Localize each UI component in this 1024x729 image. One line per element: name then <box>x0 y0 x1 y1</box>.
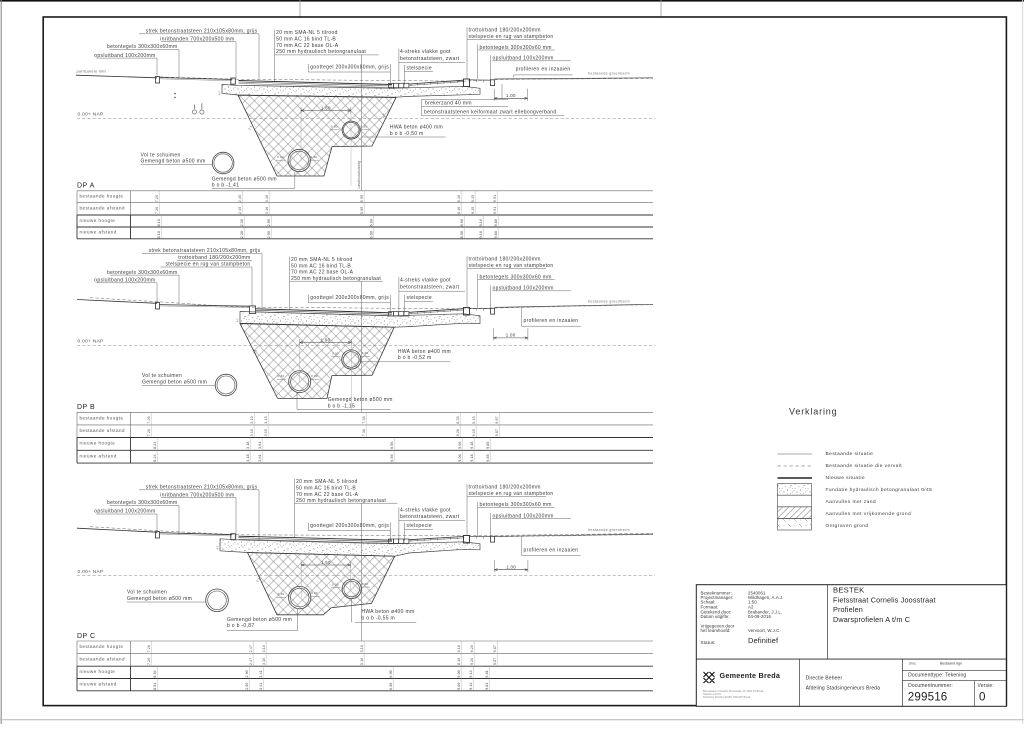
svg-text:Fundatie hydraulisch betongran: Fundatie hydraulisch betongranulaat 0/45 <box>826 487 933 493</box>
svg-text:b o b -0,55 m: b o b -0,55 m <box>361 615 395 621</box>
svg-text:50 mm AC 16 bind TL-B: 50 mm AC 16 bind TL-B <box>291 263 351 269</box>
svg-text:b o b -1,15: b o b -1,15 <box>328 403 355 409</box>
svg-text:Documenttype: Tekening: Documenttype: Tekening <box>908 673 966 679</box>
svg-text:3.10: 3.10 <box>250 429 254 436</box>
svg-text:Verklaring: Verklaring <box>789 407 838 417</box>
svg-text:50 mm AC 16 bind TL-B: 50 mm AC 16 bind TL-B <box>276 37 336 43</box>
svg-text:3.15: 3.15 <box>264 429 268 436</box>
svg-text:3.16: 3.16 <box>265 207 269 214</box>
svg-text:profileren en inzaaien: profileren en inzaaien <box>524 548 579 554</box>
svg-text:1.00: 1.00 <box>506 333 516 338</box>
svg-text:Postadres Postbus 90156,: Postadres Postbus 90156, 4800 RH Breda <box>703 696 751 699</box>
svg-text:bestaande afstand: bestaande afstand <box>80 657 126 662</box>
svg-text:7.36: 7.36 <box>362 429 366 436</box>
svg-text:0 30: 0 30 <box>278 374 285 378</box>
svg-text:stelspecie en rug van stampbet: stelspecie en rug van stampbeton <box>469 491 554 497</box>
svg-text:9.06: 9.06 <box>458 454 462 461</box>
svg-text:7.26: 7.26 <box>147 429 151 436</box>
svg-text:Nieuwe situatie: Nieuwe situatie <box>826 475 865 481</box>
svg-text:8.10: 8.10 <box>157 219 161 226</box>
svg-text:trottoirband 180/200x200mm: trottoirband 180/200x200mm <box>469 257 541 263</box>
svg-text:3.18: 3.18 <box>246 454 250 461</box>
svg-text:nieuwe hoogte: nieuwe hoogte <box>80 441 116 446</box>
svg-text:9.87: 9.87 <box>495 429 499 436</box>
svg-text:4 7: 4 7 <box>218 91 222 95</box>
svg-text:trottoirband 180/200x200mm: trottoirband 180/200x200mm <box>469 28 541 34</box>
svg-text:stelspecie: stelspecie <box>407 65 432 71</box>
svg-text:brekerzand 40 mm: brekerzand 40 mm <box>425 100 472 106</box>
svg-text:dms:: dms: <box>909 662 917 666</box>
svg-text:bestaande groenberm: bestaande groenberm <box>588 72 630 76</box>
svg-text:Gemengd beton ø500 mm: Gemengd beton ø500 mm <box>127 596 192 602</box>
svg-text:stelspecie en rug van stampbet: stelspecie en rug van stampbeton <box>469 263 554 269</box>
svg-text:Landbouwhuisweg: Landbouwhuisweg <box>357 160 361 188</box>
svg-text:1.50: 1.50 <box>321 560 331 565</box>
svg-text:8.90: 8.90 <box>460 219 464 226</box>
svg-text:4 7: 4 7 <box>236 318 240 322</box>
svg-text:9.20: 9.20 <box>470 658 474 665</box>
svg-text:Profielen: Profielen <box>833 605 863 614</box>
svg-text:7.26: 7.26 <box>155 195 159 202</box>
svg-text:Bestaande situatie: Bestaande situatie <box>826 451 874 457</box>
svg-text:8.54: 8.54 <box>153 670 157 677</box>
svg-text:Vol te schuimen: Vol te schuimen <box>141 152 181 158</box>
svg-text:6.90: 6.90 <box>369 219 373 226</box>
svg-text:9.91: 9.91 <box>493 207 497 214</box>
svg-text:7.26: 7.26 <box>147 416 151 423</box>
svg-text:3.18: 3.18 <box>246 442 250 449</box>
svg-text:b o b -0,87: b o b -0,87 <box>227 623 254 629</box>
svg-text:0 30: 0 30 <box>332 352 339 356</box>
svg-text:Bestaand dgn: Bestaand dgn <box>940 662 962 666</box>
svg-text:9.06: 9.06 <box>457 670 461 677</box>
svg-text:5.16: 5.16 <box>360 658 364 665</box>
svg-text:6.56: 6.56 <box>390 442 394 449</box>
svg-text:goottegel 200x300x80mm, grijs: goottegel 200x300x80mm, grijs <box>310 523 389 529</box>
svg-text:8.16: 8.16 <box>457 658 461 665</box>
svg-text:nieuwe hoogte: nieuwe hoogte <box>80 218 116 223</box>
svg-text:nieuwe hoogte: nieuwe hoogte <box>80 669 116 674</box>
svg-text:Gemengd beton ø500 mm: Gemengd beton ø500 mm <box>142 379 207 385</box>
svg-text:Vol te schuimen: Vol te schuimen <box>127 590 167 596</box>
svg-text:stelspecie: stelspecie <box>407 523 432 529</box>
svg-text:bestaande groenberm: bestaande groenberm <box>588 528 630 532</box>
svg-text:nieuwe afstand: nieuwe afstand <box>80 230 117 235</box>
svg-text:Status:: Status: <box>701 640 716 645</box>
svg-text:Ontgraven grond: Ontgraven grond <box>826 523 869 529</box>
svg-text:8.90: 8.90 <box>460 231 464 238</box>
svg-text:3.61: 3.61 <box>258 454 262 461</box>
svg-text:HWA beton ø400 mm: HWA beton ø400 mm <box>398 349 451 355</box>
svg-text:Vervoort, W.J.C.: Vervoort, W.J.C. <box>748 628 781 633</box>
svg-text:b o b -0,50 m: b o b -0,50 m <box>390 131 424 137</box>
svg-text:Versie:: Versie: <box>978 683 994 689</box>
svg-text:0 30: 0 30 <box>332 582 339 586</box>
svg-text:7.26: 7.26 <box>155 207 159 214</box>
svg-text:2.30: 2.30 <box>240 231 244 238</box>
svg-text:5.16: 5.16 <box>360 645 364 652</box>
svg-text:70 mm AC 22 base OL-A: 70 mm AC 22 base OL-A <box>296 492 359 498</box>
svg-text:Gemengd beton ø500 mm: Gemengd beton ø500 mm <box>212 176 277 182</box>
svg-text:bestaande hoogte: bestaande hoogte <box>80 194 124 199</box>
svg-text:Dwarsprofielen A t/m C: Dwarsprofielen A t/m C <box>833 615 910 624</box>
svg-text:50 mm AC 16 bind TL-B: 50 mm AC 16 bind TL-B <box>296 486 356 492</box>
svg-text:8.10: 8.10 <box>157 231 161 238</box>
svg-text:6.56: 6.56 <box>390 454 394 461</box>
svg-text:9.85: 9.85 <box>486 454 490 461</box>
svg-text:250 mm hydraulisch betongranul: 250 mm hydraulisch betongranulaat <box>276 49 366 55</box>
svg-text:0 30: 0 30 <box>311 374 318 378</box>
svg-text:Bestaande situatie die vervalt: Bestaande situatie die vervalt <box>826 463 903 469</box>
svg-text:Aanvullen met zand: Aanvullen met zand <box>826 499 877 505</box>
svg-text:9.15: 9.15 <box>471 207 475 214</box>
svg-text:nieuwe afstand: nieuwe afstand <box>80 682 117 687</box>
svg-text:nieuwe afstand: nieuwe afstand <box>80 454 117 459</box>
svg-text:trottoirband 180/200x200mm: trottoirband 180/200x200mm <box>469 485 541 491</box>
svg-text:2.47: 2.47 <box>249 658 253 665</box>
svg-text:299516: 299516 <box>908 691 948 704</box>
svg-text:3.41: 3.41 <box>259 683 263 690</box>
svg-text:betonstraatsteen, zwart: betonstraatsteen, zwart <box>400 514 460 520</box>
svg-text:4-streks vlakke goot: 4-streks vlakke goot <box>400 508 451 514</box>
svg-text:2.47: 2.47 <box>249 645 253 652</box>
svg-text:8.16: 8.16 <box>457 645 461 652</box>
svg-text:8.26: 8.26 <box>456 429 460 436</box>
svg-text:9.15: 9.15 <box>472 429 476 436</box>
svg-text:0: 0 <box>979 691 986 704</box>
svg-text:8.24: 8.24 <box>153 442 157 449</box>
svg-text:6.90: 6.90 <box>369 231 373 238</box>
svg-text:betonstraatsteen, zwart: betonstraatsteen, zwart <box>400 285 460 291</box>
svg-text:particuliere inrit: particuliere inrit <box>77 69 107 73</box>
svg-text:250 mm hydraulisch betongranul: 250 mm hydraulisch betongranulaat <box>291 276 381 282</box>
svg-text:Gemeente Breda: Gemeente Breda <box>720 671 781 680</box>
svg-text:betonstraatsteen, zwart: betonstraatsteen, zwart <box>400 56 460 62</box>
svg-text:2.90: 2.90 <box>267 231 271 238</box>
svg-text:DP A: DP A <box>77 183 95 190</box>
svg-text:9.16: 9.16 <box>479 231 483 238</box>
svg-text:Datum uitgifte:: Datum uitgifte: <box>701 614 730 619</box>
svg-text:9.16: 9.16 <box>479 219 483 226</box>
svg-text:Fietsstraat Cornelis Joosstraa: Fietsstraat Cornelis Joosstraat <box>833 595 936 604</box>
svg-text:0 30: 0 30 <box>277 155 284 159</box>
svg-text:DP C: DP C <box>77 633 96 640</box>
svg-text:8.26: 8.26 <box>456 416 460 423</box>
svg-text:bestaande hoogte: bestaande hoogte <box>80 415 124 420</box>
svg-text:9.15: 9.15 <box>471 195 475 202</box>
svg-text:2.90: 2.90 <box>245 683 249 690</box>
svg-text:b o b -0,52 m: b o b -0,52 m <box>398 355 432 361</box>
svg-text:1.90: 1.90 <box>321 337 331 342</box>
svg-text:3.41: 3.41 <box>259 670 263 677</box>
svg-text:stelspecie: stelspecie <box>407 295 432 301</box>
svg-text:9.18: 9.18 <box>470 454 474 461</box>
svg-text:betonstraatstenen keiformaat z: betonstraatstenen keiformaat zwart elleb… <box>424 109 556 115</box>
svg-text:2.90: 2.90 <box>245 670 249 677</box>
svg-text:0 30: 0 30 <box>331 125 338 129</box>
svg-text:9.06: 9.06 <box>458 442 462 449</box>
svg-text:9.14: 9.14 <box>469 683 473 690</box>
svg-text:0 30: 0 30 <box>362 582 369 586</box>
svg-text:profileren en inzaaien: profileren en inzaaien <box>516 66 571 72</box>
svg-text:1.60: 1.60 <box>321 105 331 110</box>
svg-text:0 30: 0 30 <box>311 155 318 159</box>
svg-text:5.95: 5.95 <box>360 195 364 202</box>
svg-text:04-08-2016: 04-08-2016 <box>748 614 771 619</box>
svg-text:HWA beton ø400 mm: HWA beton ø400 mm <box>390 125 443 131</box>
svg-text:Documentnummer:: Documentnummer: <box>908 683 953 689</box>
svg-text:9.91: 9.91 <box>493 195 497 202</box>
svg-text:3.10: 3.10 <box>262 645 266 652</box>
svg-text:bestaande groenberm: bestaande groenberm <box>588 300 630 304</box>
svg-text:20 mm SMA-NL 5 tilrood: 20 mm SMA-NL 5 tilrood <box>291 257 353 263</box>
svg-text:2.45: 2.45 <box>238 195 242 202</box>
svg-text:8.24: 8.24 <box>153 454 157 461</box>
svg-text:Definitief: Definitief <box>748 636 779 645</box>
svg-text:9.81: 9.81 <box>485 670 489 677</box>
svg-text:9.80: 9.80 <box>494 219 498 226</box>
svg-text:4-streks vlakke goot: 4-streks vlakke goot <box>400 277 451 283</box>
svg-text:9.18: 9.18 <box>470 442 474 449</box>
svg-text:0 30: 0 30 <box>311 591 318 595</box>
svg-text:b o b -1,41: b o b -1,41 <box>212 183 239 189</box>
svg-text:7.26: 7.26 <box>147 645 151 652</box>
svg-text:9.14: 9.14 <box>469 670 473 677</box>
svg-text:9.80: 9.80 <box>494 231 498 238</box>
svg-text:DP B: DP B <box>77 404 95 411</box>
svg-text:0 30: 0 30 <box>360 124 367 128</box>
svg-text:stelspecie en rug van stampbet: stelspecie en rug van stampbeton <box>469 34 554 40</box>
svg-text:Gemengd beton ø500 mm: Gemengd beton ø500 mm <box>328 397 393 403</box>
svg-text:bestaande hoogte: bestaande hoogte <box>80 644 124 649</box>
svg-text:profileren en inzaaien: profileren en inzaaien <box>524 318 579 324</box>
svg-text:bestaande afstand: bestaande afstand <box>80 206 126 211</box>
svg-text:2.45: 2.45 <box>238 207 242 214</box>
svg-text:3.15: 3.15 <box>264 416 268 423</box>
svg-text:2.90: 2.90 <box>267 219 271 226</box>
svg-text:Vol te schuimen: Vol te schuimen <box>142 373 182 379</box>
svg-text:3.10: 3.10 <box>250 416 254 423</box>
svg-text:1.00: 1.00 <box>506 565 516 570</box>
svg-text:goottegel 200x300x80mm, grijs: goottegel 200x300x80mm, grijs <box>310 295 389 301</box>
svg-text:8.54: 8.54 <box>153 683 157 690</box>
svg-text:4 7: 4 7 <box>216 545 220 549</box>
svg-text:3.10: 3.10 <box>262 658 266 665</box>
svg-text:BESTEK: BESTEK <box>833 586 864 595</box>
svg-text:9.87: 9.87 <box>493 645 497 652</box>
svg-text:HWA beton ø400 mm: HWA beton ø400 mm <box>361 609 414 615</box>
svg-text:0 30: 0 30 <box>278 592 285 596</box>
svg-text:4-streks vlakke goot: 4-streks vlakke goot <box>400 49 451 55</box>
svg-text:0.00+ NAP: 0.00+ NAP <box>78 112 104 118</box>
svg-text:Gemengd beton ø500 mm: Gemengd beton ø500 mm <box>227 617 292 623</box>
svg-text:9.81: 9.81 <box>485 683 489 690</box>
svg-text:20 mm SMA-NL 5 tilrood: 20 mm SMA-NL 5 tilrood <box>296 479 358 485</box>
svg-text:3.16: 3.16 <box>265 195 269 202</box>
svg-text:2.30: 2.30 <box>240 219 244 226</box>
svg-text:70 mm AC 22 base OL-A: 70 mm AC 22 base OL-A <box>276 43 339 49</box>
svg-text:9.87: 9.87 <box>495 416 499 423</box>
svg-text:3.61: 3.61 <box>258 442 262 449</box>
svg-text:0 30: 0 30 <box>362 351 369 355</box>
svg-text:9.20: 9.20 <box>470 645 474 652</box>
svg-text:8.16: 8.16 <box>457 195 461 202</box>
svg-text:bestaande afstand: bestaande afstand <box>80 428 126 433</box>
svg-text:5.95: 5.95 <box>360 207 364 214</box>
svg-text:9.85: 9.85 <box>486 442 490 449</box>
svg-text:Afdeling Stadsingenieurs Breda: Afdeling Stadsingenieurs Breda <box>806 686 881 692</box>
svg-text:Aanvullen met vrijkomende gron: Aanvullen met vrijkomende grond <box>826 511 912 517</box>
svg-text:1.00: 1.00 <box>506 93 516 98</box>
svg-text:het teamhoofd:: het teamhoofd: <box>701 628 731 633</box>
svg-text:goottegel 200x300x80mm, grijs: goottegel 200x300x80mm, grijs <box>310 64 389 70</box>
svg-text:9.87: 9.87 <box>493 658 497 665</box>
svg-text:20 mm SMA-NL 5 tilrood: 20 mm SMA-NL 5 tilrood <box>276 30 338 36</box>
svg-text:6.96: 6.96 <box>389 670 393 677</box>
svg-text:8.16: 8.16 <box>457 207 461 214</box>
svg-text:Gemengd beton ø500 mm: Gemengd beton ø500 mm <box>141 159 206 165</box>
svg-text:9.15: 9.15 <box>472 416 476 423</box>
svg-text:6.96: 6.96 <box>389 683 393 690</box>
svg-text:7.36: 7.36 <box>362 416 366 423</box>
svg-text:7.26: 7.26 <box>147 658 151 665</box>
svg-text:70 mm AC 22 base OL-A: 70 mm AC 22 base OL-A <box>291 270 354 276</box>
svg-text:9.06: 9.06 <box>457 683 461 690</box>
svg-text:0.00+ NAP: 0.00+ NAP <box>78 339 104 345</box>
svg-text:0.00+ NAP: 0.00+ NAP <box>78 569 104 575</box>
svg-text:Directie Beheer: Directie Beheer <box>806 675 843 681</box>
